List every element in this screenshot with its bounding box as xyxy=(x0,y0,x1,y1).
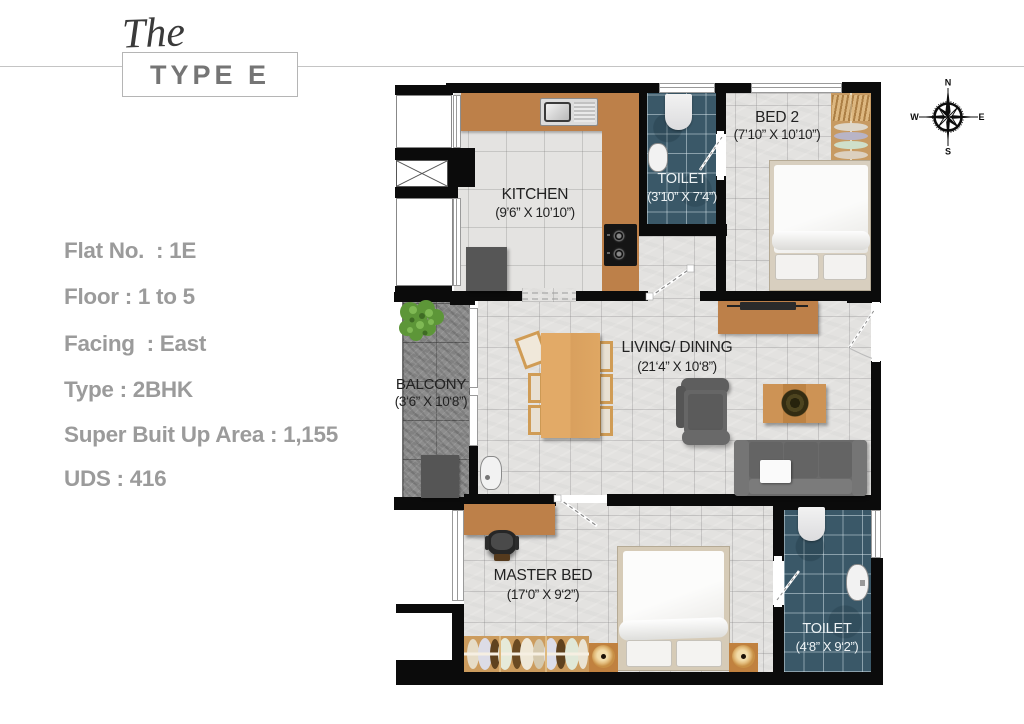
svg-text:N: N xyxy=(945,78,952,88)
svg-text:S: S xyxy=(945,147,951,157)
svg-text:E: E xyxy=(978,112,984,122)
svg-text:W: W xyxy=(910,112,919,122)
